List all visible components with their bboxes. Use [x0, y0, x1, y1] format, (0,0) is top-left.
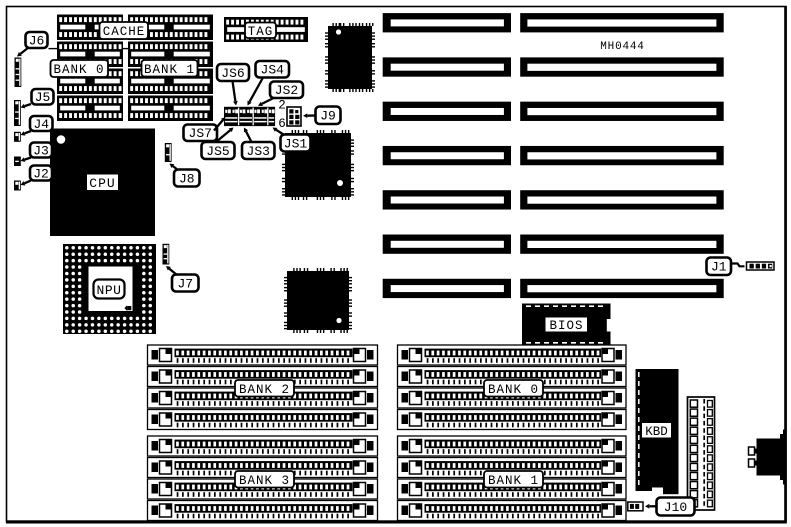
- svg-text:6: 6: [278, 117, 286, 131]
- svg-text:KBD: KBD: [645, 425, 668, 439]
- svg-text:CACHE: CACHE: [103, 25, 146, 39]
- svg-text:JS3: JS3: [247, 144, 270, 159]
- svg-text:J6: J6: [29, 33, 45, 48]
- svg-text:BANK 0: BANK 0: [488, 383, 539, 397]
- svg-text:J4: J4: [33, 117, 49, 132]
- svg-text:JS2: JS2: [275, 83, 298, 98]
- svg-text:BANK 0: BANK 0: [53, 63, 104, 77]
- svg-text:J3: J3: [33, 143, 49, 158]
- svg-text:TAG: TAG: [248, 25, 274, 39]
- svg-text:J10: J10: [664, 500, 687, 515]
- svg-text:JS7: JS7: [189, 126, 212, 141]
- svg-text:JS5: JS5: [206, 144, 229, 159]
- svg-text:J9: J9: [320, 109, 336, 124]
- svg-text:J2: J2: [33, 166, 49, 181]
- svg-text:BANK 1: BANK 1: [488, 474, 539, 488]
- svg-text:BANK 2: BANK 2: [239, 383, 290, 397]
- svg-text:J7: J7: [177, 276, 193, 291]
- svg-text:JS1: JS1: [284, 136, 308, 151]
- svg-text:JS4: JS4: [261, 63, 285, 78]
- svg-text:2: 2: [278, 99, 286, 113]
- svg-text:NPU: NPU: [97, 283, 122, 298]
- svg-text:BIOS: BIOS: [549, 319, 583, 333]
- svg-text:BANK 1: BANK 1: [144, 63, 195, 77]
- svg-text:CPU: CPU: [89, 176, 115, 191]
- svg-text:J5: J5: [35, 90, 51, 105]
- svg-text:MH0444: MH0444: [600, 41, 644, 53]
- svg-text:J8: J8: [179, 171, 195, 186]
- svg-text:J1: J1: [711, 260, 727, 275]
- svg-text:JS6: JS6: [221, 66, 244, 81]
- svg-text:BANK 3: BANK 3: [239, 474, 290, 488]
